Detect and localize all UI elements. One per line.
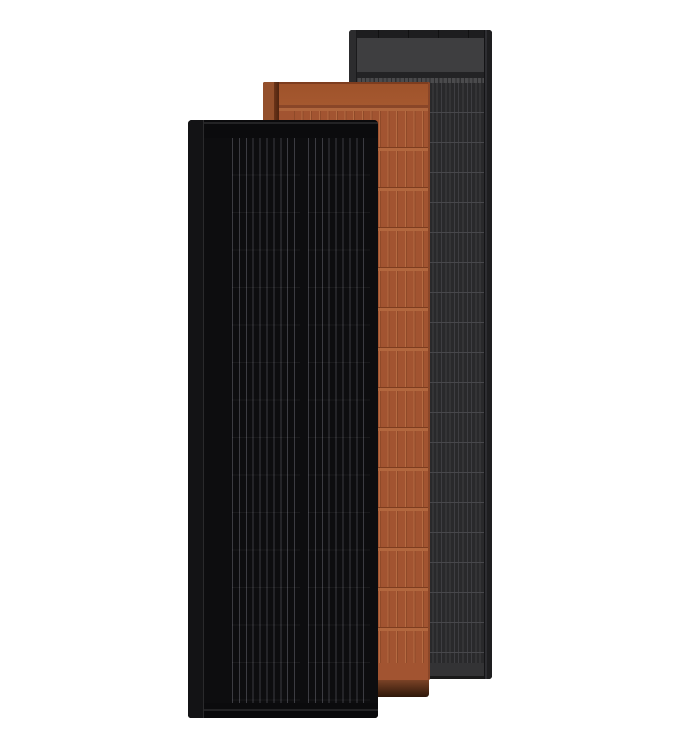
charcoal-right-frame [484,30,492,679]
black-top-frame [188,120,378,138]
black-cell-column-right [308,138,370,703]
charcoal-top-frame [349,30,492,38]
black-cell-column-left [232,138,300,703]
product-stage [0,0,684,748]
terracotta-right-edge [428,82,430,680]
black-left-side-edge [188,120,204,718]
terracotta-header-band [263,84,430,105]
solar-panel-black-front [188,120,378,718]
charcoal-header-band [349,38,492,72]
black-bottom-frame [188,703,378,718]
